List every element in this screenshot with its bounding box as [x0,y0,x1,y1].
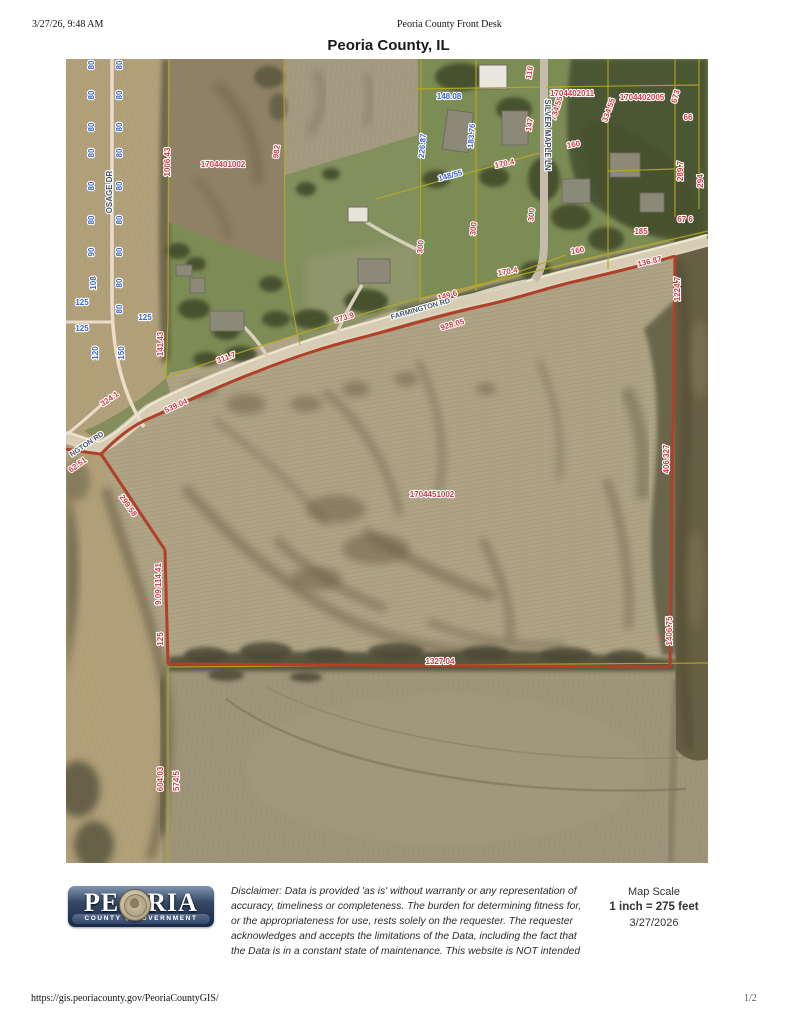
svg-text:90: 90 [87,247,96,256]
svg-text:300: 300 [468,221,478,236]
svg-text:1704402005: 1704402005 [620,93,665,102]
svg-text:120: 120 [91,346,100,360]
svg-text:125: 125 [156,632,165,646]
svg-text:80: 80 [87,90,96,99]
svg-text:1224.7: 1224.7 [673,276,682,301]
svg-text:294: 294 [696,174,705,188]
svg-text:67 6: 67 6 [677,215,693,224]
svg-text:80: 80 [115,90,124,99]
svg-text:1327.04: 1327.04 [426,657,455,666]
svg-text:80: 80 [87,215,96,224]
svg-text:80: 80 [115,181,124,190]
svg-text:574.5: 574.5 [172,770,181,791]
svg-text:80: 80 [115,122,124,131]
svg-text:80: 80 [115,215,124,224]
svg-text:66: 66 [684,113,693,122]
svg-text:150: 150 [117,346,126,360]
svg-text:80: 80 [87,122,96,131]
svg-text:300: 300 [415,239,425,254]
svg-text:80: 80 [115,278,124,287]
svg-text:1406.75: 1406.75 [665,616,674,645]
svg-text:289.7: 289.7 [676,160,685,181]
svg-text:80: 80 [115,247,124,256]
svg-text:125: 125 [75,324,89,333]
svg-text:300: 300 [526,207,536,222]
svg-text:982: 982 [271,144,282,159]
svg-text:1704451002: 1704451002 [410,490,455,499]
svg-text:148.08: 148.08 [437,92,462,101]
svg-text:141.43: 141.43 [156,331,165,356]
svg-text:108: 108 [89,276,98,290]
svg-text:125: 125 [75,298,89,307]
svg-text:80: 80 [115,304,124,313]
svg-text:1704401002: 1704401002 [201,160,246,169]
svg-text:125: 125 [138,313,152,322]
svg-text:80: 80 [87,181,96,190]
svg-text:604.03: 604.03 [156,766,165,791]
svg-text:1006.43: 1006.43 [163,147,172,176]
svg-text:80: 80 [115,148,124,157]
svg-text:OSAGE DR: OSAGE DR [105,170,114,213]
svg-text:80: 80 [87,148,96,157]
svg-text:406.327: 406.327 [662,444,671,473]
svg-text:185: 185 [634,227,648,236]
svg-text:80: 80 [87,60,96,69]
svg-text:1704402011: 1704402011 [550,89,595,98]
svg-text:SILVER MAPLE LN: SILVER MAPLE LN [543,99,552,171]
svg-text:9.09 114.41: 9.09 114.41 [154,563,163,605]
svg-text:80: 80 [115,60,124,69]
